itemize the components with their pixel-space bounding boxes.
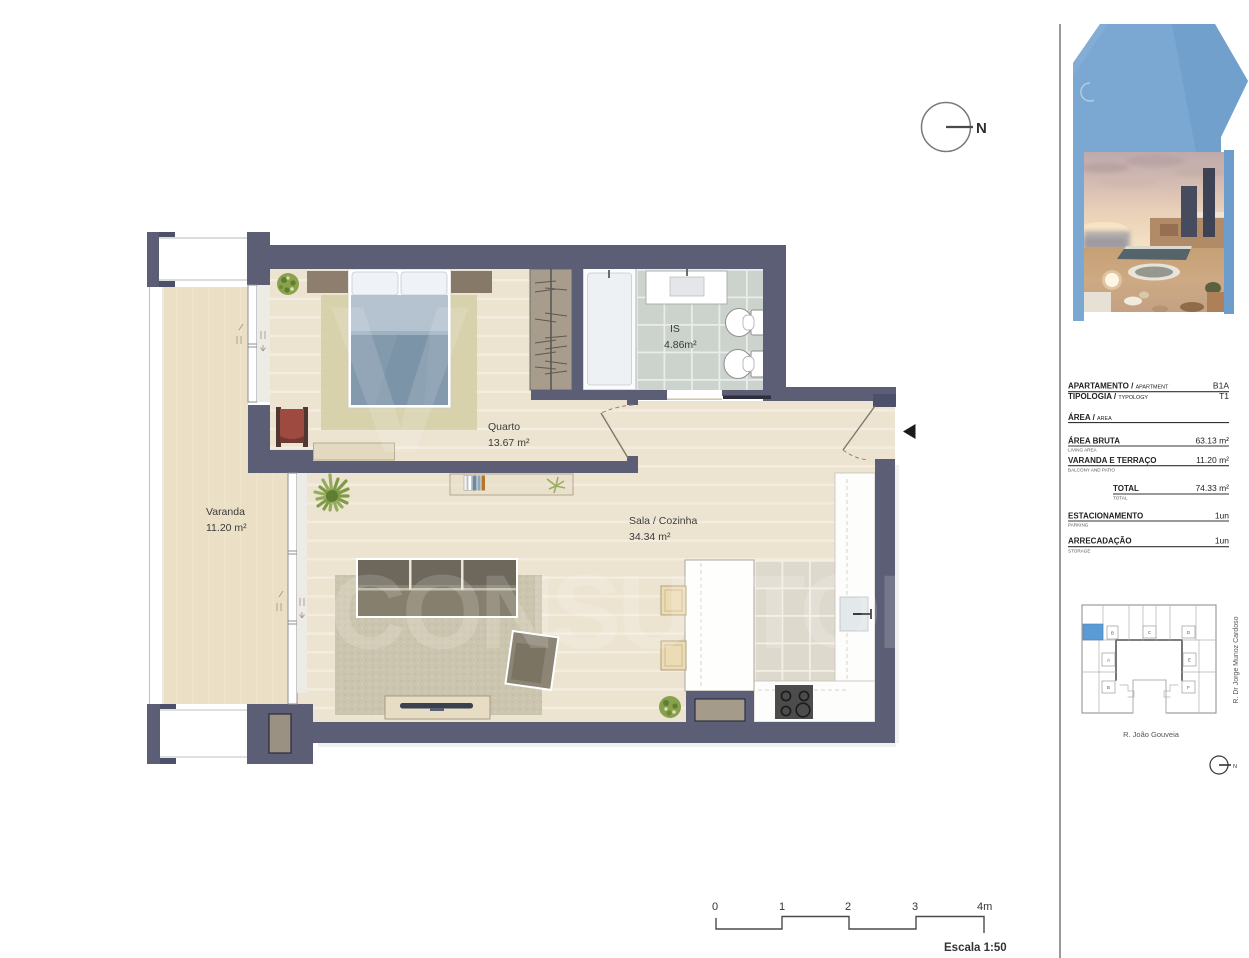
svg-text:N: N xyxy=(1233,764,1237,770)
svg-text:E: E xyxy=(1188,658,1191,663)
svg-text:R. João Gouveia: R. João Gouveia xyxy=(1123,730,1180,739)
svg-text:11.20 m²: 11.20 m² xyxy=(1196,455,1229,465)
svg-text:VARANDA E TERRAÇO: VARANDA E TERRAÇO xyxy=(1068,456,1156,465)
svg-text:BALCONY AND PATIO: BALCONY AND PATIO xyxy=(1068,467,1115,472)
svg-text:TOTAL: TOTAL xyxy=(1113,484,1139,493)
svg-text:B: B xyxy=(1111,631,1114,636)
svg-text:Escala 1:50: Escala 1:50 xyxy=(944,942,1007,954)
svg-text:63.13 m²: 63.13 m² xyxy=(1195,436,1229,446)
svg-text:V: V xyxy=(330,262,470,497)
svg-text:1: 1 xyxy=(779,901,785,913)
svg-text:4m: 4m xyxy=(977,901,992,913)
svg-text:R. Dr Jorge Munoz Cardoso: R. Dr Jorge Munoz Cardoso xyxy=(1233,616,1240,703)
svg-text:13.67 m²: 13.67 m² xyxy=(488,437,530,449)
svg-text:2: 2 xyxy=(845,901,851,913)
svg-text:F: F xyxy=(1187,685,1190,690)
svg-text:Varanda: Varanda xyxy=(206,506,245,518)
svg-text:34.34 m²: 34.34 m² xyxy=(629,531,671,543)
svg-text:CONSULTORES: CONSULTORES xyxy=(330,554,1081,671)
svg-text:11.20 m²: 11.20 m² xyxy=(206,522,247,534)
svg-text:PARKING: PARKING xyxy=(1068,523,1089,528)
svg-text:74.33 m²: 74.33 m² xyxy=(1195,483,1229,493)
svg-text:Sala / Cozinha: Sala / Cozinha xyxy=(629,515,697,527)
svg-text:1un: 1un xyxy=(1215,536,1229,546)
svg-text:ÁREA / AREA: ÁREA / AREA xyxy=(1068,413,1112,422)
svg-text:0: 0 xyxy=(712,901,718,913)
svg-text:ARRECADAÇÃO: ARRECADAÇÃO xyxy=(1068,537,1132,546)
svg-text:IS: IS xyxy=(670,323,680,335)
svg-text:T1: T1 xyxy=(1219,391,1229,401)
svg-text:B: B xyxy=(1107,685,1110,690)
svg-text:1un: 1un xyxy=(1215,511,1229,521)
svg-text:N: N xyxy=(976,120,987,137)
svg-text:APARTAMENTO / APARTMENT: APARTAMENTO / APARTMENT xyxy=(1068,382,1169,391)
svg-text:TOTAL: TOTAL xyxy=(1113,496,1128,501)
svg-text:STORAGE: STORAGE xyxy=(1068,548,1090,553)
svg-text:Quarto: Quarto xyxy=(488,421,520,433)
svg-text:TIPOLOGIA / TYPOLOGY: TIPOLOGIA / TYPOLOGY xyxy=(1068,392,1148,401)
svg-text:B1A: B1A xyxy=(1213,381,1229,391)
svg-text:LIVING AREA: LIVING AREA xyxy=(1068,448,1098,453)
svg-text:4.86m²: 4.86m² xyxy=(664,339,697,351)
svg-text:3: 3 xyxy=(912,901,918,913)
svg-text:ESTACIONAMENTO: ESTACIONAMENTO xyxy=(1068,512,1143,521)
svg-text:A: A xyxy=(1107,658,1110,663)
svg-text:ÁREA BRUTA: ÁREA BRUTA xyxy=(1068,437,1120,446)
